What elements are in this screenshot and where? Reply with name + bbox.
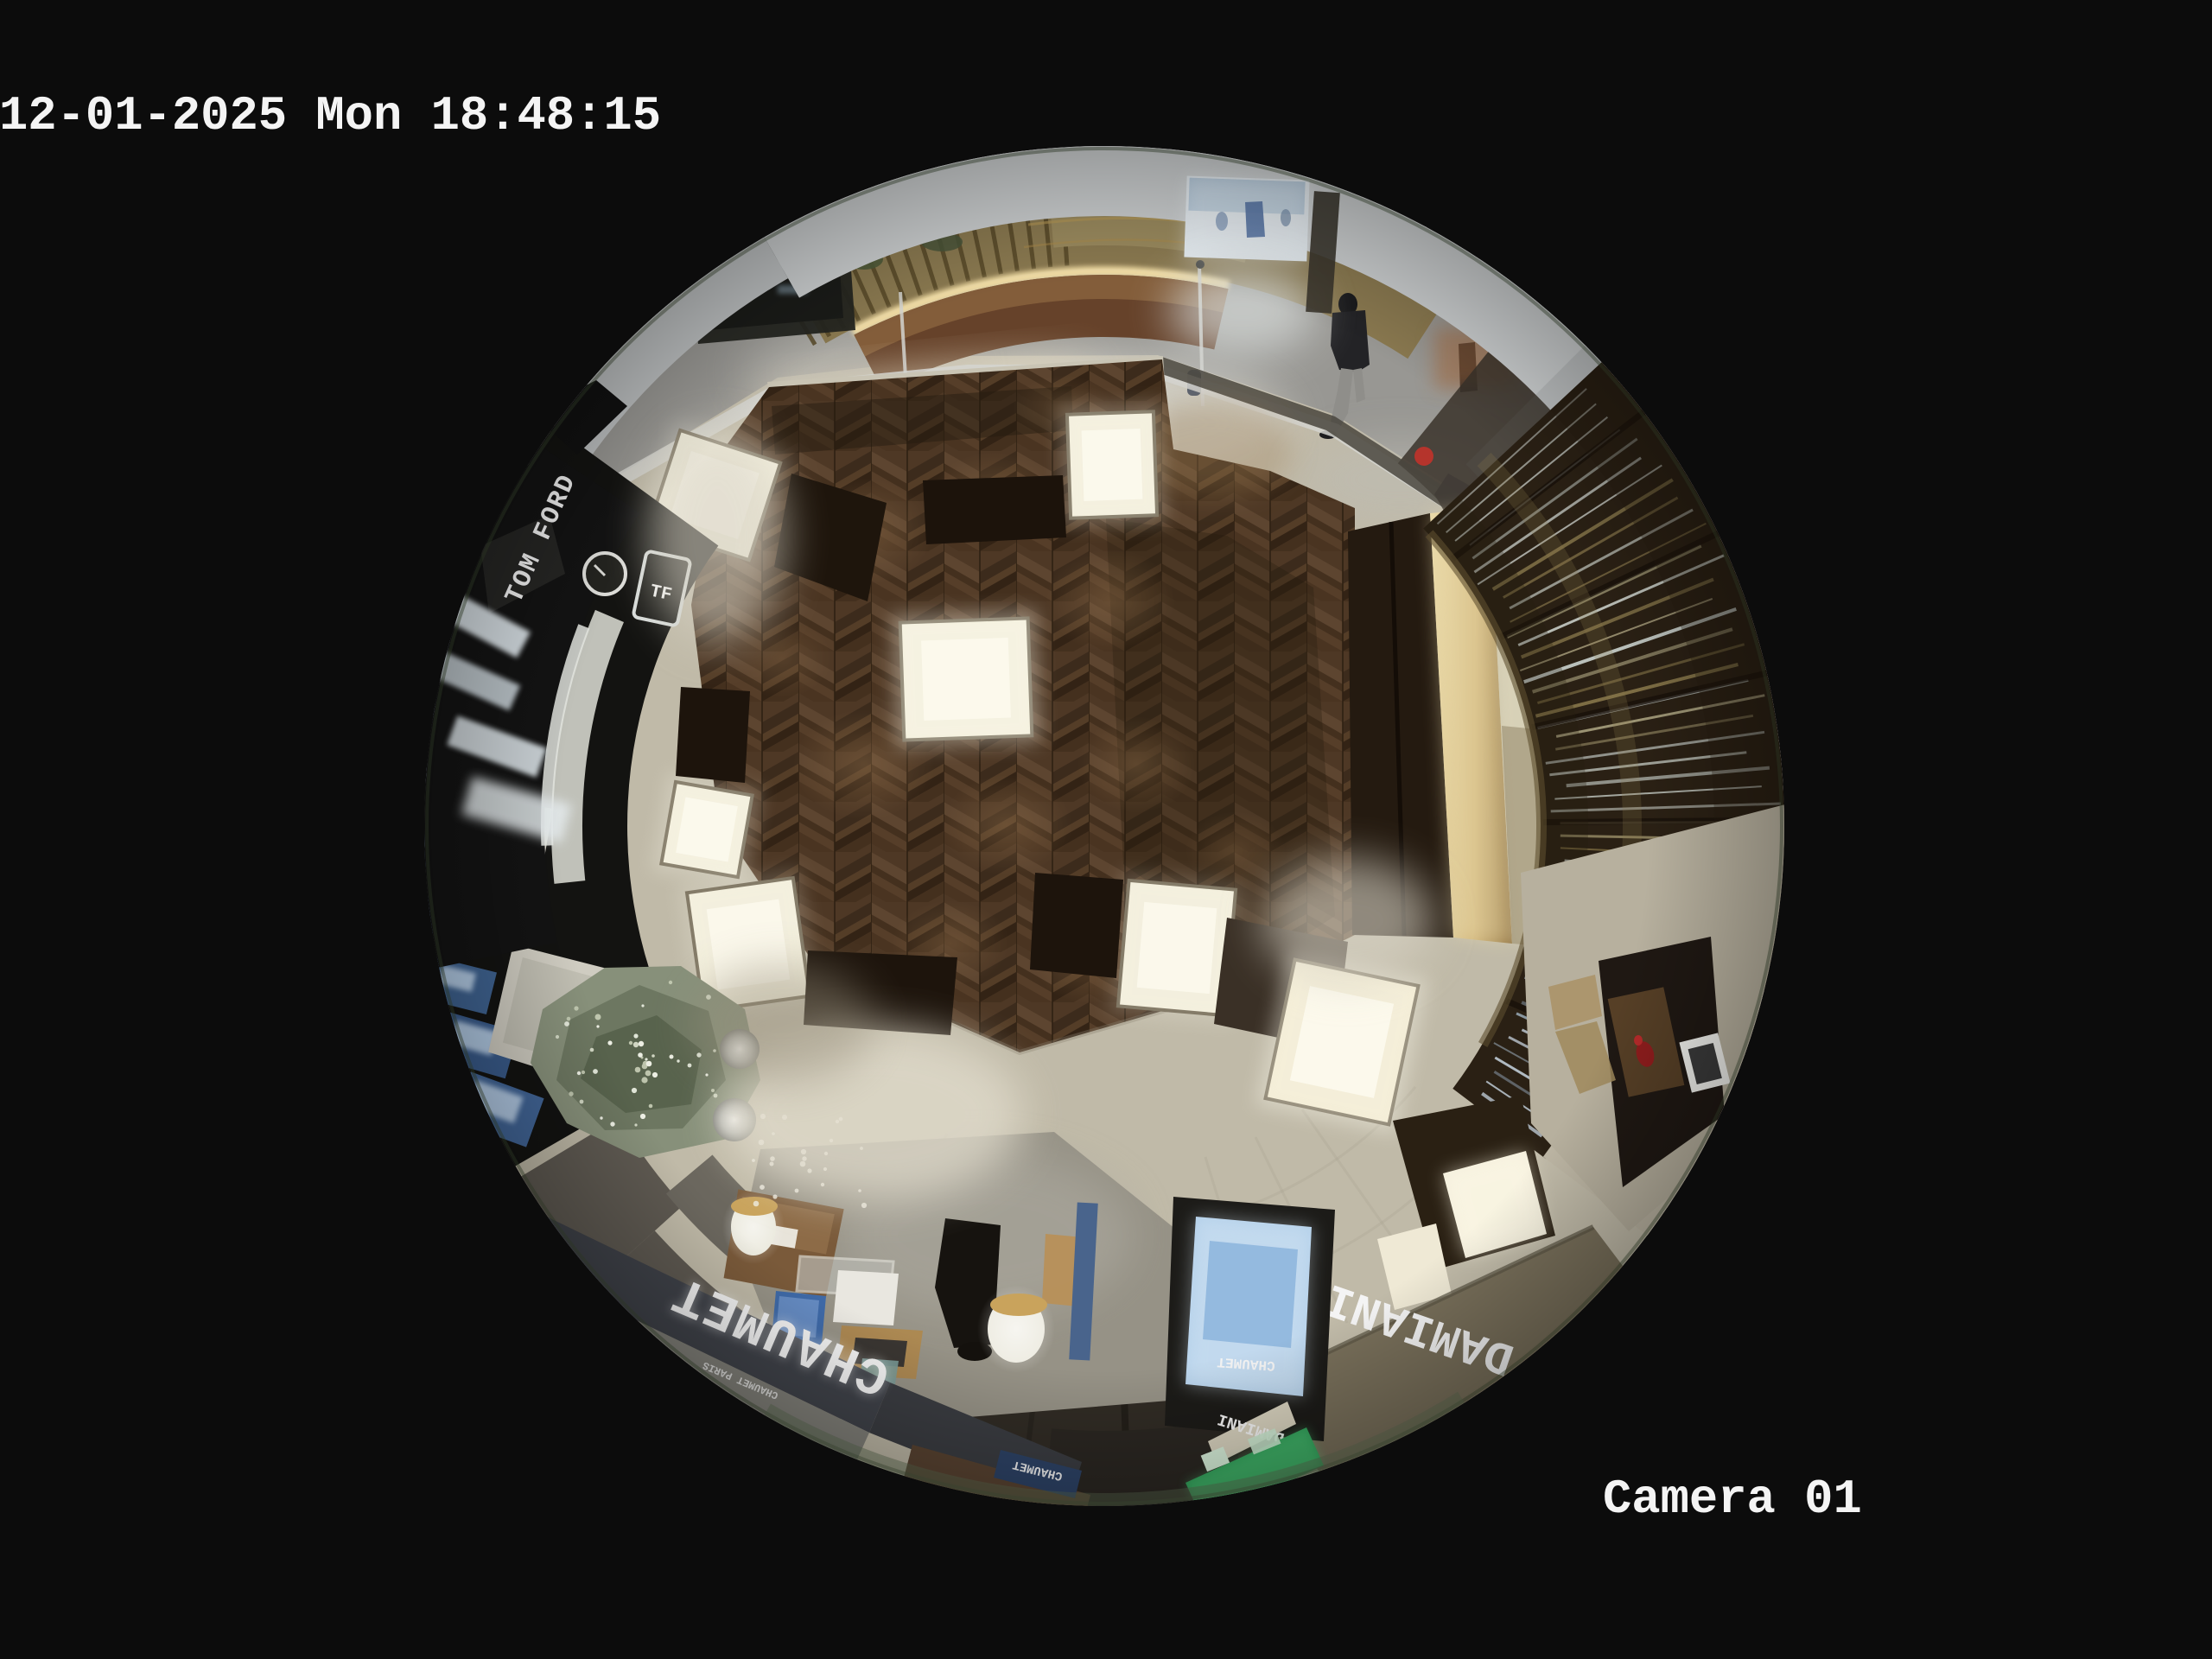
svg-text:12-01-2025 Mon 18:48:15: 12-01-2025 Mon 18:48:15: [0, 89, 661, 143]
svg-text:Camera 01: Camera 01: [1603, 1472, 1862, 1527]
